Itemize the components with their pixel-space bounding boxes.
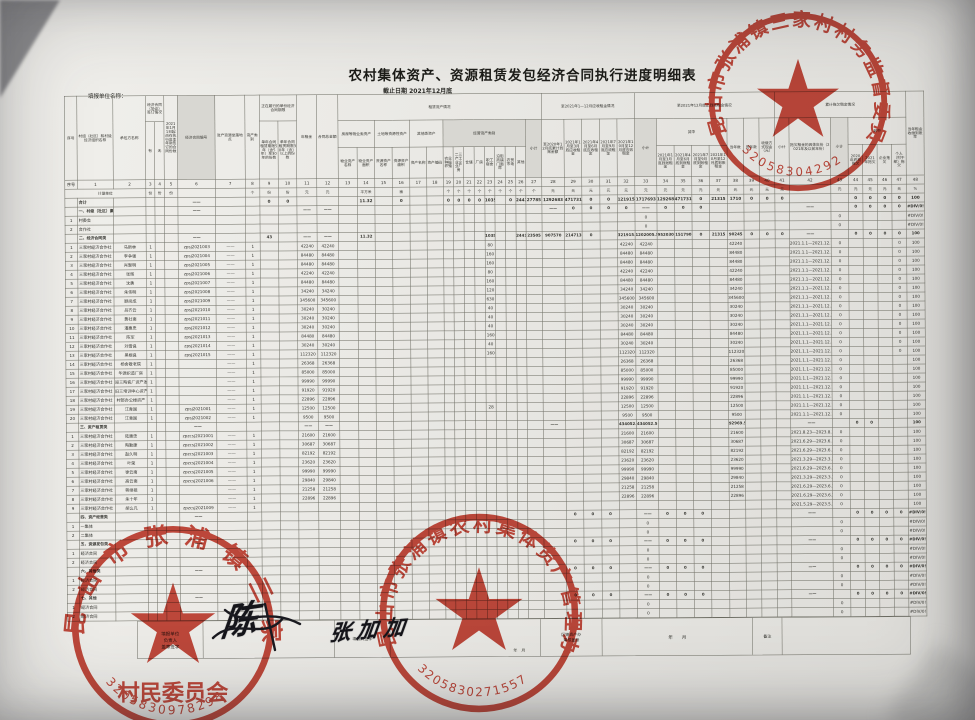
- table-cell: [777, 599, 792, 608]
- table-cell: [776, 392, 791, 401]
- table-cell: 100: [907, 319, 925, 328]
- table-cell: [496, 439, 506, 448]
- table-cell: [517, 339, 527, 348]
- table-cell: [495, 277, 505, 286]
- table-cell: ——: [216, 287, 246, 296]
- table-cell: [879, 373, 894, 382]
- table-cell: 1035: [485, 232, 495, 241]
- table-cell: [894, 571, 909, 580]
- table-cell: zpzcsj2021002: [179, 440, 216, 449]
- table-cell: [261, 440, 280, 449]
- unit-cell: 个: [474, 187, 484, 196]
- table-cell: [894, 481, 909, 490]
- table-cell: [497, 457, 507, 466]
- table-cell: [358, 250, 376, 259]
- table-cell: 30687: [729, 437, 746, 446]
- table-cell: zpzcsj2021004: [179, 458, 216, 467]
- header-cell: 物业资产面积: [357, 147, 375, 178]
- table-cell: 1: [147, 369, 156, 378]
- table-cell: 99990: [318, 377, 340, 386]
- table-cell: [485, 223, 495, 232]
- table-cell: 三家村经济合作社: [78, 270, 114, 279]
- table-cell: [497, 493, 507, 502]
- table-cell: ——: [178, 197, 215, 206]
- table-cell: 22896: [728, 392, 745, 401]
- table-cell: [619, 555, 637, 564]
- table-cell: [865, 526, 880, 535]
- table-cell: [359, 466, 377, 475]
- table-cell: 15: [66, 369, 78, 378]
- table-cell: [506, 231, 516, 240]
- table-cell: [475, 286, 485, 295]
- table-cell: [411, 430, 428, 439]
- table-cell: [761, 491, 777, 500]
- table-cell: [619, 546, 637, 555]
- table-cell: ——: [317, 206, 339, 215]
- table-cell: 16: [66, 378, 78, 387]
- table-cell: [777, 473, 792, 482]
- table-cell: 99990: [298, 377, 318, 386]
- table-cell: 120: [485, 286, 495, 295]
- table-cell: [279, 323, 298, 332]
- table-cell: [454, 313, 464, 322]
- table-cell: 100: [908, 373, 926, 382]
- table-cell: 40: [485, 313, 495, 322]
- table-cell: [339, 331, 358, 340]
- table-cell: [496, 421, 506, 430]
- table-cell: [760, 239, 776, 248]
- table-cell: 1: [146, 252, 155, 261]
- table-cell: 1: [147, 468, 156, 477]
- table-cell: [495, 232, 505, 241]
- table-cell: [543, 339, 566, 348]
- table-cell: [261, 395, 280, 404]
- table-cell: [675, 356, 693, 365]
- table-cell: [526, 258, 542, 267]
- table-cell: [517, 474, 527, 483]
- table-cell: 0: [833, 544, 851, 553]
- table-cell: [165, 261, 179, 270]
- table-cell: [565, 222, 583, 231]
- table-cell: 84480: [635, 249, 657, 258]
- column-number-cell: 13: [338, 178, 357, 187]
- table-cell: #DIV/0!: [909, 580, 927, 589]
- table-cell: [658, 348, 676, 357]
- table-cell: [694, 572, 712, 581]
- table-cell: 0: [582, 231, 600, 240]
- table-cell: [411, 304, 428, 313]
- table-cell: [760, 320, 776, 329]
- table-cell: 30240: [618, 312, 636, 321]
- table-cell: [299, 539, 319, 548]
- table-cell: [657, 312, 675, 321]
- table-cell: 43: [260, 233, 279, 242]
- table-cell: [279, 341, 298, 350]
- table-cell: [178, 224, 215, 233]
- table-cell: [165, 315, 179, 324]
- table-cell: 0: [850, 418, 865, 427]
- table-cell: [394, 457, 412, 466]
- table-cell: [166, 468, 180, 477]
- table-cell: [299, 521, 319, 530]
- table-cell: 30240: [728, 311, 745, 320]
- table-cell: [746, 509, 762, 518]
- table-cell: 100: [907, 256, 925, 265]
- table-cell: [620, 609, 638, 618]
- table-cell: [792, 581, 834, 590]
- table-cell: [516, 294, 526, 303]
- table-cell: [454, 259, 464, 268]
- table-cell: 21258: [319, 485, 341, 494]
- table-cell: [156, 324, 165, 333]
- table-cell: [711, 455, 729, 464]
- table-cell: [712, 545, 730, 554]
- table-cell: [761, 482, 777, 491]
- table-cell: [165, 270, 179, 279]
- column-number-cell: 14: [357, 178, 375, 187]
- table-cell: [583, 339, 601, 348]
- table-cell: 11.32: [357, 232, 375, 241]
- table-cell: [543, 465, 566, 474]
- table-cell: [454, 331, 464, 340]
- table-cell: [475, 376, 485, 385]
- table-cell: [711, 410, 729, 419]
- table-cell: 0: [637, 555, 659, 564]
- table-cell: [863, 256, 878, 265]
- table-cell: [864, 391, 879, 400]
- table-cell: [466, 493, 476, 502]
- table-cell: [601, 447, 619, 456]
- table-cell: 100: [908, 481, 926, 490]
- header-cell: 2021年1月至3月底到账租金: [656, 146, 674, 177]
- table-cell: [455, 439, 465, 448]
- table-cell: zpsj2021005: [178, 260, 215, 269]
- table-cell: [601, 438, 619, 447]
- table-cell: [693, 401, 711, 410]
- table-cell: [583, 330, 601, 339]
- table-cell: [464, 268, 474, 277]
- table-cell: [339, 313, 358, 322]
- table-cell: 9500: [318, 413, 340, 422]
- table-cell: [745, 455, 761, 464]
- table-cell: [443, 232, 453, 241]
- table-cell: 345600: [618, 294, 636, 303]
- header-cell: 单年合同租赁期限30年（含）以上的份数: [278, 121, 297, 179]
- table-cell: [377, 475, 395, 484]
- table-cell: 42240: [728, 266, 745, 275]
- table-cell: [280, 449, 299, 458]
- table-cell: [831, 229, 849, 238]
- table-cell: [712, 536, 730, 545]
- table-cell: 0: [833, 553, 851, 562]
- table-cell: [260, 206, 279, 215]
- table-cell: [864, 427, 879, 436]
- table-cell: [339, 223, 358, 232]
- column-number-cell: 18: [427, 178, 444, 187]
- table-cell: 1: [247, 440, 262, 449]
- table-cell: 0: [676, 509, 694, 518]
- header-cell: 资源资产面积: [392, 147, 410, 178]
- table-cell: 0: [831, 238, 849, 247]
- table-cell: [675, 338, 693, 347]
- table-cell: ——: [216, 251, 246, 260]
- table-cell: [761, 410, 777, 419]
- table-cell: ——: [542, 204, 565, 213]
- table-cell: ——: [217, 458, 247, 467]
- table-cell: 99990: [728, 374, 745, 383]
- header-cell: 序号: [64, 96, 77, 180]
- table-cell: [411, 412, 428, 421]
- header-cell: 资产类别: [245, 95, 260, 179]
- table-cell: 471731: [674, 194, 692, 203]
- table-cell: 1: [247, 485, 262, 494]
- table-cell: [358, 394, 376, 403]
- table-cell: [279, 314, 298, 323]
- table-cell: 2021.1.1—2021.12.31: [790, 338, 832, 347]
- table-cell: [317, 215, 339, 224]
- table-cell: 0: [878, 202, 893, 211]
- table-cell: 23620: [619, 456, 637, 465]
- header-cell: 承包方名称: [113, 96, 146, 180]
- table-cell: [475, 304, 485, 313]
- table-cell: [507, 492, 517, 501]
- table-cell: [278, 206, 297, 215]
- table-cell: 2021.8.23—2023.8.22: [791, 428, 833, 437]
- table-cell: [746, 581, 762, 590]
- table-cell: [454, 304, 464, 313]
- table-cell: [156, 423, 165, 432]
- table-cell: 1: [247, 458, 262, 467]
- table-cell: 一、村级（社区）集体经济组织: [77, 207, 113, 216]
- table-cell: [156, 342, 165, 351]
- header-cell: 合同总金额: [316, 95, 338, 179]
- table-cell: [777, 464, 792, 473]
- table-cell: 42240: [635, 240, 657, 249]
- table-cell: [165, 306, 179, 315]
- table-cell: [777, 518, 792, 527]
- table-cell: [583, 384, 601, 393]
- table-cell: [711, 374, 729, 383]
- table-cell: [166, 432, 180, 441]
- table-cell: [583, 312, 601, 321]
- table-cell: 0: [893, 283, 908, 292]
- header-cell: 仓储: [464, 147, 475, 178]
- table-cell: [455, 385, 465, 394]
- table-cell: 0: [602, 537, 620, 546]
- table-cell: [245, 206, 260, 215]
- table-cell: 胡么凡: [115, 504, 147, 513]
- table-cell: 2021.1.1—2021.12.31: [790, 239, 832, 248]
- table-cell: [745, 410, 761, 419]
- table-cell: [393, 304, 411, 313]
- table-cell: [601, 483, 619, 492]
- table-cell: 1: [146, 324, 155, 333]
- table-cell: 23620: [318, 458, 340, 467]
- table-cell: 0: [832, 391, 850, 400]
- table-cell: [485, 214, 495, 223]
- table-cell: [280, 503, 299, 512]
- table-cell: [376, 430, 394, 439]
- table-cell: [155, 261, 164, 270]
- table-cell: [445, 439, 455, 448]
- table-cell: [601, 420, 619, 429]
- table-cell: 0: [474, 196, 484, 205]
- table-cell: ——: [217, 449, 247, 458]
- table-cell: #DIV/0!: [908, 508, 926, 517]
- table-cell: [542, 267, 565, 276]
- column-number-cell: 32: [617, 177, 635, 186]
- table-cell: [164, 207, 178, 216]
- table-cell: [527, 312, 543, 321]
- table-cell: [675, 266, 693, 275]
- table-cell: [444, 385, 454, 394]
- table-cell: [602, 501, 620, 510]
- table-cell: [865, 454, 880, 463]
- table-cell: [280, 422, 299, 431]
- table-cell: 345600: [317, 296, 339, 305]
- table-cell: 160: [485, 331, 495, 340]
- table-cell: 1: [146, 297, 155, 306]
- header-cell: 经营资产类别: [443, 119, 526, 147]
- table-cell: 84480: [297, 251, 317, 260]
- table-cell: 84480: [728, 257, 745, 266]
- table-cell: [711, 401, 729, 410]
- table-cell: 9500: [636, 411, 658, 420]
- table-cell: 2021.1.1—2021.12.31: [790, 266, 832, 275]
- table-cell: 吕齐云: [114, 306, 146, 315]
- table-cell: [455, 358, 465, 367]
- table-cell: [566, 456, 584, 465]
- table-cell: [428, 421, 445, 430]
- table-cell: 三家村经济合作社: [78, 369, 114, 378]
- table-cell: [542, 213, 565, 222]
- table-cell: [340, 376, 359, 385]
- table-cell: 0: [831, 265, 849, 274]
- table-cell: [319, 512, 341, 521]
- table-cell: [445, 475, 455, 484]
- table-cell: [711, 446, 729, 455]
- table-cell: [465, 295, 475, 304]
- table-cell: [261, 368, 280, 377]
- table-cell: [849, 220, 864, 229]
- table-cell: [894, 490, 909, 499]
- table-cell: zpzcsj2021006: [180, 476, 217, 485]
- table-cell: 40: [485, 322, 495, 331]
- table-cell: [455, 457, 465, 466]
- table-cell: [261, 467, 280, 476]
- table-cell: 100: [908, 400, 926, 409]
- table-cell: [776, 329, 791, 338]
- table-cell: [584, 474, 602, 483]
- table-cell: [279, 287, 298, 296]
- table-cell: [465, 403, 475, 412]
- table-cell: [542, 240, 565, 249]
- table-cell: 0: [893, 292, 908, 301]
- table-cell: [166, 387, 180, 396]
- table-cell: [358, 376, 376, 385]
- table-cell: [712, 554, 730, 563]
- table-cell: 27785: [526, 195, 542, 204]
- table-cell: [527, 384, 543, 393]
- table-cell: zpzcsj2021005: [180, 467, 217, 476]
- table-cell: [601, 348, 619, 357]
- table-cell: [527, 402, 543, 411]
- table-cell: [319, 584, 341, 593]
- table-cell: 82192: [619, 447, 637, 456]
- table-cell: [411, 313, 428, 322]
- table-cell: #DIV/0!: [909, 553, 927, 562]
- table-cell: [762, 599, 778, 608]
- table-cell: 0: [692, 203, 710, 212]
- table-cell: [745, 338, 761, 347]
- table-cell: [712, 563, 730, 572]
- table-cell: [340, 475, 359, 484]
- table-cell: ——: [216, 296, 246, 305]
- table-cell: 160: [485, 277, 495, 286]
- table-cell: [427, 214, 444, 223]
- table-cell: [777, 491, 792, 500]
- table-cell: [710, 248, 728, 257]
- table-cell: [157, 468, 166, 477]
- table-cell: ——: [216, 368, 246, 377]
- table-cell: 0: [850, 508, 865, 517]
- table-cell: 2021.1.1—2021.12.31: [790, 374, 832, 383]
- table-cell: 0: [892, 238, 907, 247]
- table-cell: 1: [147, 351, 156, 360]
- table-cell: 0: [674, 203, 692, 212]
- table-cell: [775, 284, 790, 293]
- table-cell: [583, 357, 601, 366]
- table-cell: 85000: [728, 365, 745, 374]
- table-cell: [517, 348, 527, 357]
- table-cell: [340, 367, 359, 376]
- table-cell: [428, 439, 445, 448]
- table-cell: [878, 310, 893, 319]
- table-cell: 2021.1.1—2021.12.31: [790, 257, 832, 266]
- table-cell: [358, 340, 376, 349]
- table-cell: 0: [893, 319, 908, 328]
- table-cell: [166, 396, 180, 405]
- table-cell: 0: [833, 472, 851, 481]
- table-cell: [505, 204, 515, 213]
- table-cell: 村委会: [77, 216, 113, 225]
- table-cell: [527, 321, 543, 330]
- table-cell: [601, 429, 619, 438]
- table-cell: [394, 475, 412, 484]
- table-cell: 85000: [298, 368, 318, 377]
- table-cell: [711, 428, 729, 437]
- table-cell: [340, 385, 359, 394]
- table-cell: [849, 292, 864, 301]
- column-number-cell: 7: [215, 179, 245, 188]
- table-cell: [542, 276, 565, 285]
- table-cell: [215, 215, 245, 224]
- table-cell: [375, 295, 393, 304]
- table-cell: [659, 546, 677, 555]
- table-cell: [179, 395, 216, 404]
- table-cell: [692, 266, 710, 275]
- table-cell: [761, 509, 777, 518]
- table-cell: [879, 382, 894, 391]
- table-cell: [676, 446, 694, 455]
- table-cell: [850, 472, 865, 481]
- table-cell: 0: [894, 508, 909, 517]
- table-cell: [864, 355, 879, 364]
- table-cell: [710, 257, 728, 266]
- table-cell: [260, 314, 279, 323]
- table-cell: [776, 365, 791, 374]
- table-cell: [893, 364, 908, 373]
